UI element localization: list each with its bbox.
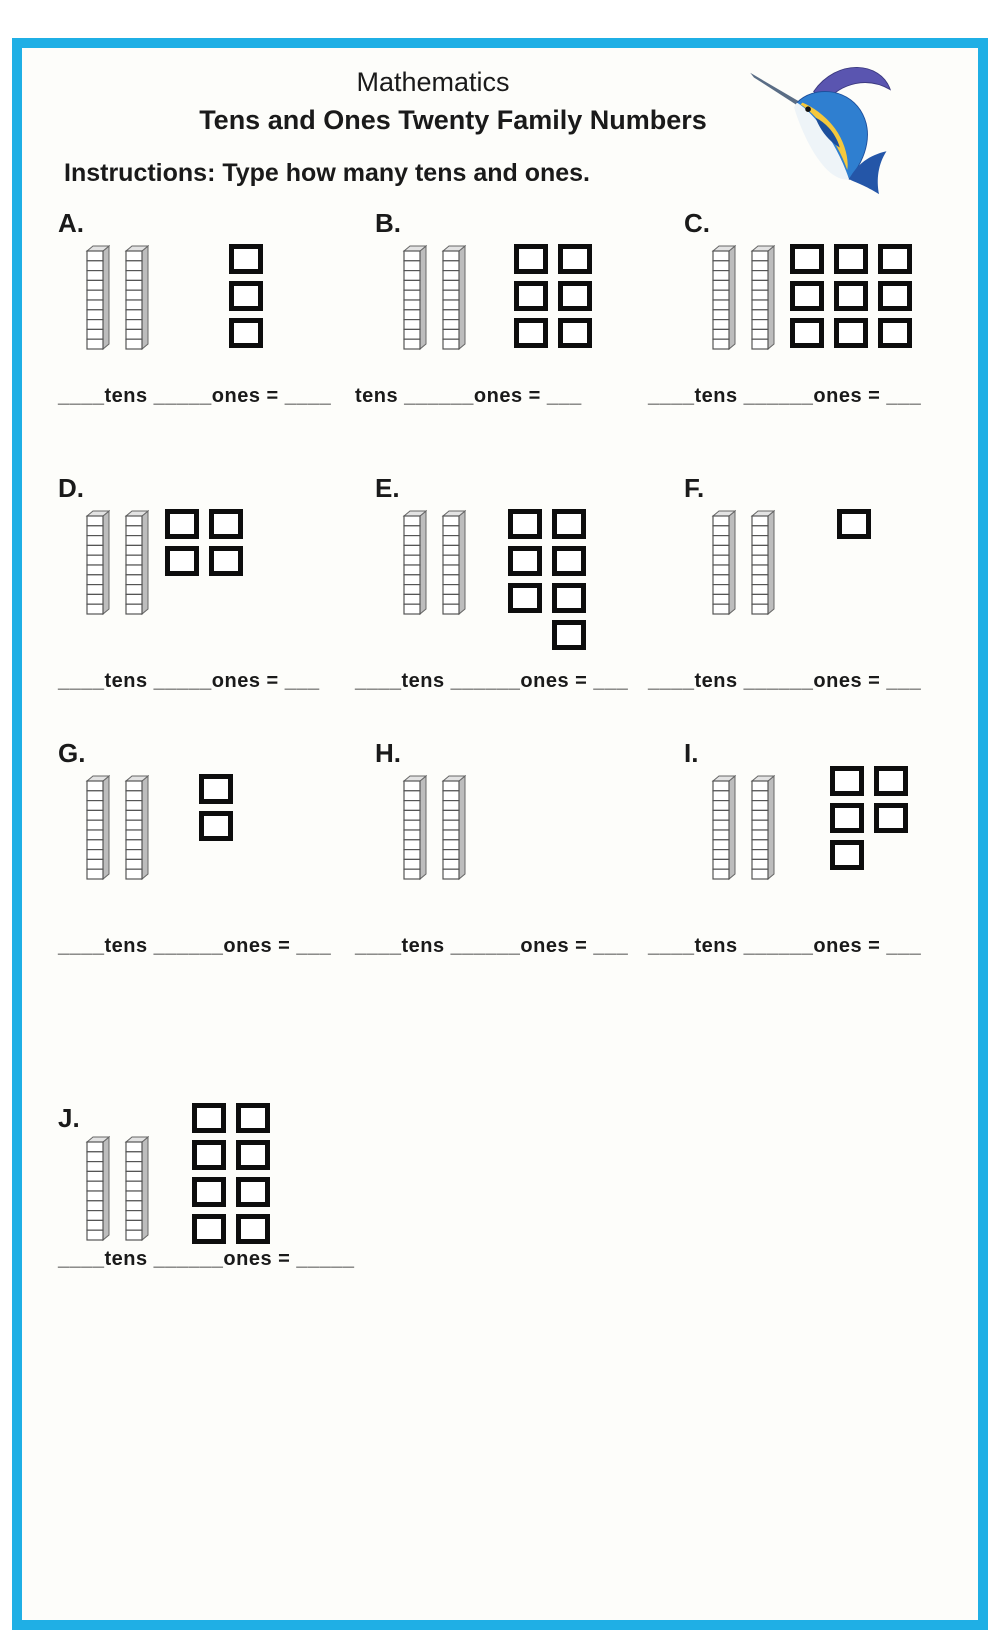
answer-line-B[interactable]: tens ______ones = ___ [355,385,582,408]
answer-line-G[interactable]: ____tens ______ones = ___ [58,935,331,958]
one-block-icon [790,318,824,348]
tens-rod-icon [440,774,466,886]
marlin-fish-image [748,56,898,196]
one-block-icon [558,281,592,311]
one-block-icon [508,546,542,576]
problem-H-blocks [401,774,648,886]
one-block-icon [229,281,263,311]
one-block-icon [236,1214,270,1244]
one-block-icon [878,318,912,348]
problem-A: A. ____tens _____ones = ____ [58,207,355,472]
tens-rod-icon [749,774,775,886]
answer-line-H[interactable]: ____tens ______ones = ___ [355,935,628,958]
ones-blocks [508,509,586,650]
tens-rod-icon [710,509,736,621]
problem-B-label: B. [375,207,648,240]
ones-blocks [199,774,233,841]
problem-G-label: G. [58,737,355,770]
one-block-icon [552,509,586,539]
one-block-icon [558,318,592,348]
answer-line-D[interactable]: ____tens _____ones = ___ [58,670,320,693]
tens-rods [710,509,775,621]
one-block-icon [830,766,864,796]
problem-C: C. ____tens ______ones = ___ [648,207,958,472]
one-block-icon [878,244,912,274]
one-block-icon [552,620,586,650]
tens-rods [84,244,149,356]
one-block-icon [199,774,233,804]
tens-rod-icon [401,509,427,621]
problem-E: E. ____tens ______ones = ___ [355,472,648,737]
one-block-icon [165,546,199,576]
one-block-icon [558,244,592,274]
answer-line-C[interactable]: ____tens ______ones = ___ [648,385,921,408]
one-block-icon [508,509,542,539]
problem-H: H. ____tens ______ones = ___ [355,737,648,1002]
problem-A-blocks [84,244,355,356]
tens-rods [710,774,775,886]
problem-D-label: D. [58,472,355,505]
problem-B-blocks [401,244,648,356]
one-block-icon [552,583,586,613]
ones-blocks [514,244,592,348]
tens-rod-icon [401,244,427,356]
one-block-icon [878,281,912,311]
tens-rod-icon [440,244,466,356]
worksheet-page: Mathematics Tens and Ones Twenty Family … [0,0,1000,1643]
ones-blocks [229,244,263,348]
problem-G-blocks [84,774,355,886]
tens-rod-icon [440,509,466,621]
problems-grid: A. ____tens _____ones = ____B. tens ____… [58,207,958,1312]
tens-rod-icon [710,774,736,886]
one-block-icon [192,1177,226,1207]
answer-line-J[interactable]: ____tens ______ones = _____ [58,1248,355,1271]
answer-line-A[interactable]: ____tens _____ones = ____ [58,385,331,408]
problem-H-label: H. [375,737,648,770]
one-block-icon [790,281,824,311]
ones-blocks [192,1103,270,1244]
one-block-icon [514,244,548,274]
one-block-icon [830,840,864,870]
one-block-icon [209,509,243,539]
one-block-icon [837,509,871,539]
tens-rod-icon [123,1135,149,1247]
tens-rods [84,509,149,621]
one-block-icon [830,803,864,833]
problem-E-label: E. [375,472,648,505]
tens-rod-icon [123,244,149,356]
problem-D: D. ____tens _____ones = ___ [58,472,355,737]
one-block-icon [165,509,199,539]
problem-J-blocks [84,1103,355,1247]
tens-rods [84,774,149,886]
tens-rods [401,774,466,886]
answer-line-E[interactable]: ____tens ______ones = ___ [355,670,628,693]
one-block-icon [192,1103,226,1133]
one-block-icon [236,1177,270,1207]
one-block-icon [514,281,548,311]
problem-F-label: F. [684,472,958,505]
problem-A-label: A. [58,207,355,240]
one-block-icon [236,1140,270,1170]
worksheet-frame: Mathematics Tens and Ones Twenty Family … [12,38,988,1630]
problem-B: B. tens ______ones = ___ [355,207,648,472]
one-block-icon [874,766,908,796]
tens-rods [401,509,466,621]
problem-G: G. ____tens ______ones = ___ [58,737,355,1002]
problem-F: F. ____tens ______ones = ___ [648,472,958,737]
ones-blocks [837,509,871,539]
tens-rod-icon [84,509,110,621]
one-block-icon [514,318,548,348]
problem-C-blocks [710,244,958,356]
one-block-icon [229,244,263,274]
tens-rod-icon [84,1135,110,1247]
one-block-icon [552,546,586,576]
problem-C-label: C. [684,207,958,240]
one-block-icon [192,1214,226,1244]
one-block-icon [834,244,868,274]
problem-I: I. ____tens ______ones = ___ [648,737,958,1002]
problem-F-blocks [710,509,958,621]
one-block-icon [209,546,243,576]
worksheet-content: Mathematics Tens and Ones Twenty Family … [22,48,978,1620]
problem-J: J. ____tens ______ones = _____ [58,1102,355,1312]
tens-rod-icon [84,244,110,356]
one-block-icon [834,281,868,311]
problem-I-label: I. [684,737,958,770]
one-block-icon [508,583,542,613]
tens-rod-icon [123,509,149,621]
tens-rods [84,1135,149,1247]
tens-rod-icon [401,774,427,886]
problem-D-blocks [84,509,355,621]
ones-blocks [790,244,912,348]
tens-rod-icon [749,244,775,356]
one-block-icon [834,318,868,348]
one-block-icon [236,1103,270,1133]
problem-E-blocks [401,509,648,650]
one-block-icon [790,244,824,274]
one-block-icon [229,318,263,348]
problem-I-blocks [710,774,958,886]
tens-rods [401,244,466,356]
tens-rod-icon [749,509,775,621]
ones-blocks [165,509,243,576]
one-block-icon [199,811,233,841]
answer-line-I[interactable]: ____tens ______ones = ___ [648,935,921,958]
ones-blocks [830,766,908,870]
answer-line-F[interactable]: ____tens ______ones = ___ [648,670,921,693]
one-block-icon [192,1140,226,1170]
tens-rod-icon [710,244,736,356]
tens-rod-icon [123,774,149,886]
tens-rods [710,244,775,356]
one-block-icon [874,803,908,833]
tens-rod-icon [84,774,110,886]
